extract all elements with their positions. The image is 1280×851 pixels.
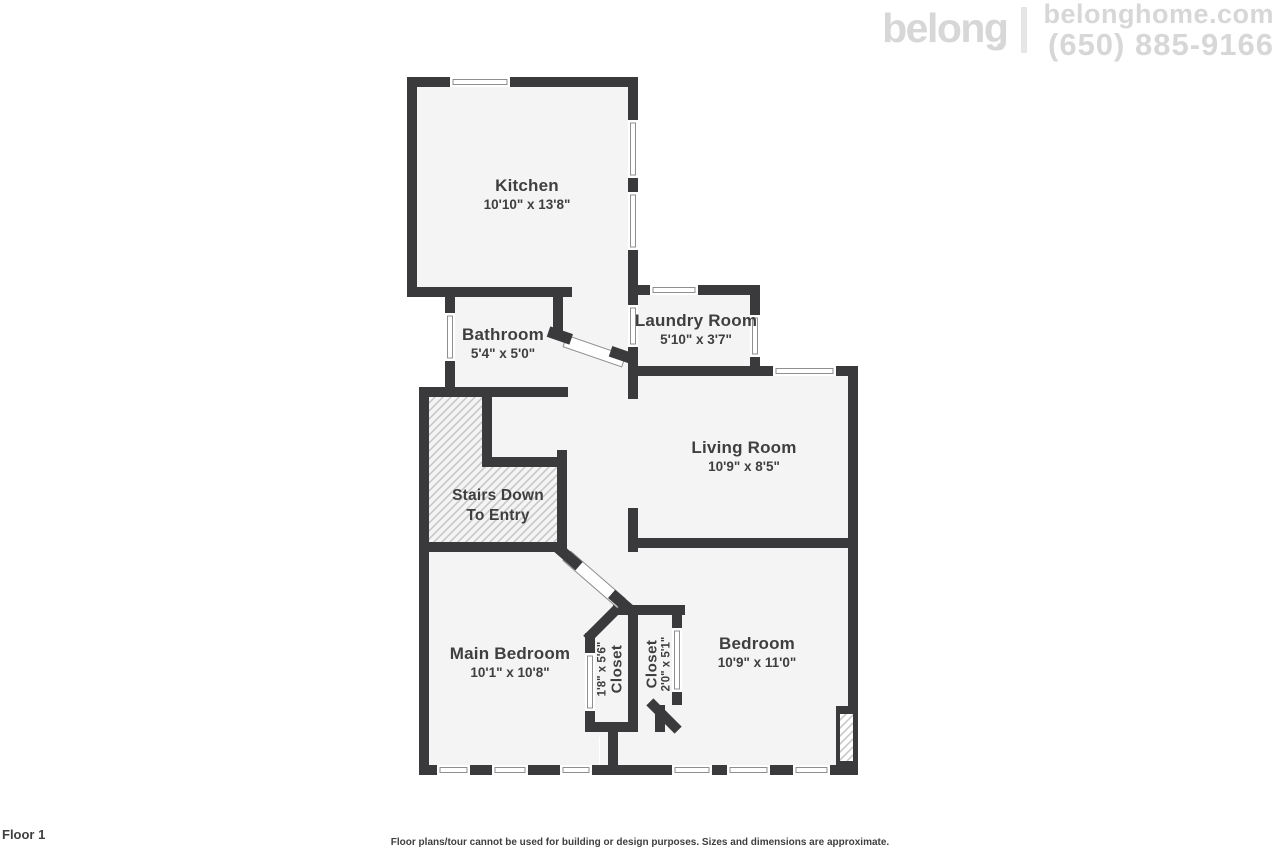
chimney [836,706,858,768]
closet-1-name: Closet [609,645,626,694]
kitchen-dimensions: 10'10" x 13'8" [484,197,571,212]
floor-plan-drawing [0,0,1280,851]
room-label-kitchen: Kitchen 10'10" x 13'8" [484,176,571,212]
main-bedroom-dimensions: 10'1" x 10'8" [450,665,570,680]
disclaimer-text: Floor plans/tour cannot be used for buil… [0,837,1280,848]
room-label-main-bedroom: Main Bedroom 10'1" x 10'8" [450,644,570,680]
kitchen-name: Kitchen [484,176,571,196]
laundry-name: Laundry Room [635,311,757,331]
laundry-dimensions: 5'10" x 3'7" [635,332,757,347]
stairs-line1: Stairs Down [452,486,544,506]
living-name: Living Room [691,438,796,458]
closet-1-dimensions: 1'8" x 5'6" [597,642,609,697]
stairs-line2: To Entry [452,506,544,526]
main-bedroom-name: Main Bedroom [450,644,570,664]
bathroom-dimensions: 5'4" x 5'0" [462,346,544,361]
bedroom-dimensions: 10'9" x 11'0" [718,655,797,670]
bathroom-name: Bathroom [462,325,544,345]
closet-2-name: Closet [644,640,661,689]
closet-2-dimensions: 2'0" x 5'1" [661,637,673,692]
room-label-bathroom: Bathroom 5'4" x 5'0" [462,325,544,361]
living-dimensions: 10'9" x 8'5" [691,459,796,474]
room-label-closet-1: 1'8" x 5'6" Closet [597,642,626,697]
stairs-label: Stairs Down To Entry [452,486,544,526]
room-label-closet-2: Closet 2'0" x 5'1" [644,637,673,692]
bedroom-name: Bedroom [718,634,797,654]
room-label-bedroom: Bedroom 10'9" x 11'0" [718,634,797,670]
room-label-living: Living Room 10'9" x 8'5" [691,438,796,474]
room-label-laundry: Laundry Room 5'10" x 3'7" [635,311,757,347]
